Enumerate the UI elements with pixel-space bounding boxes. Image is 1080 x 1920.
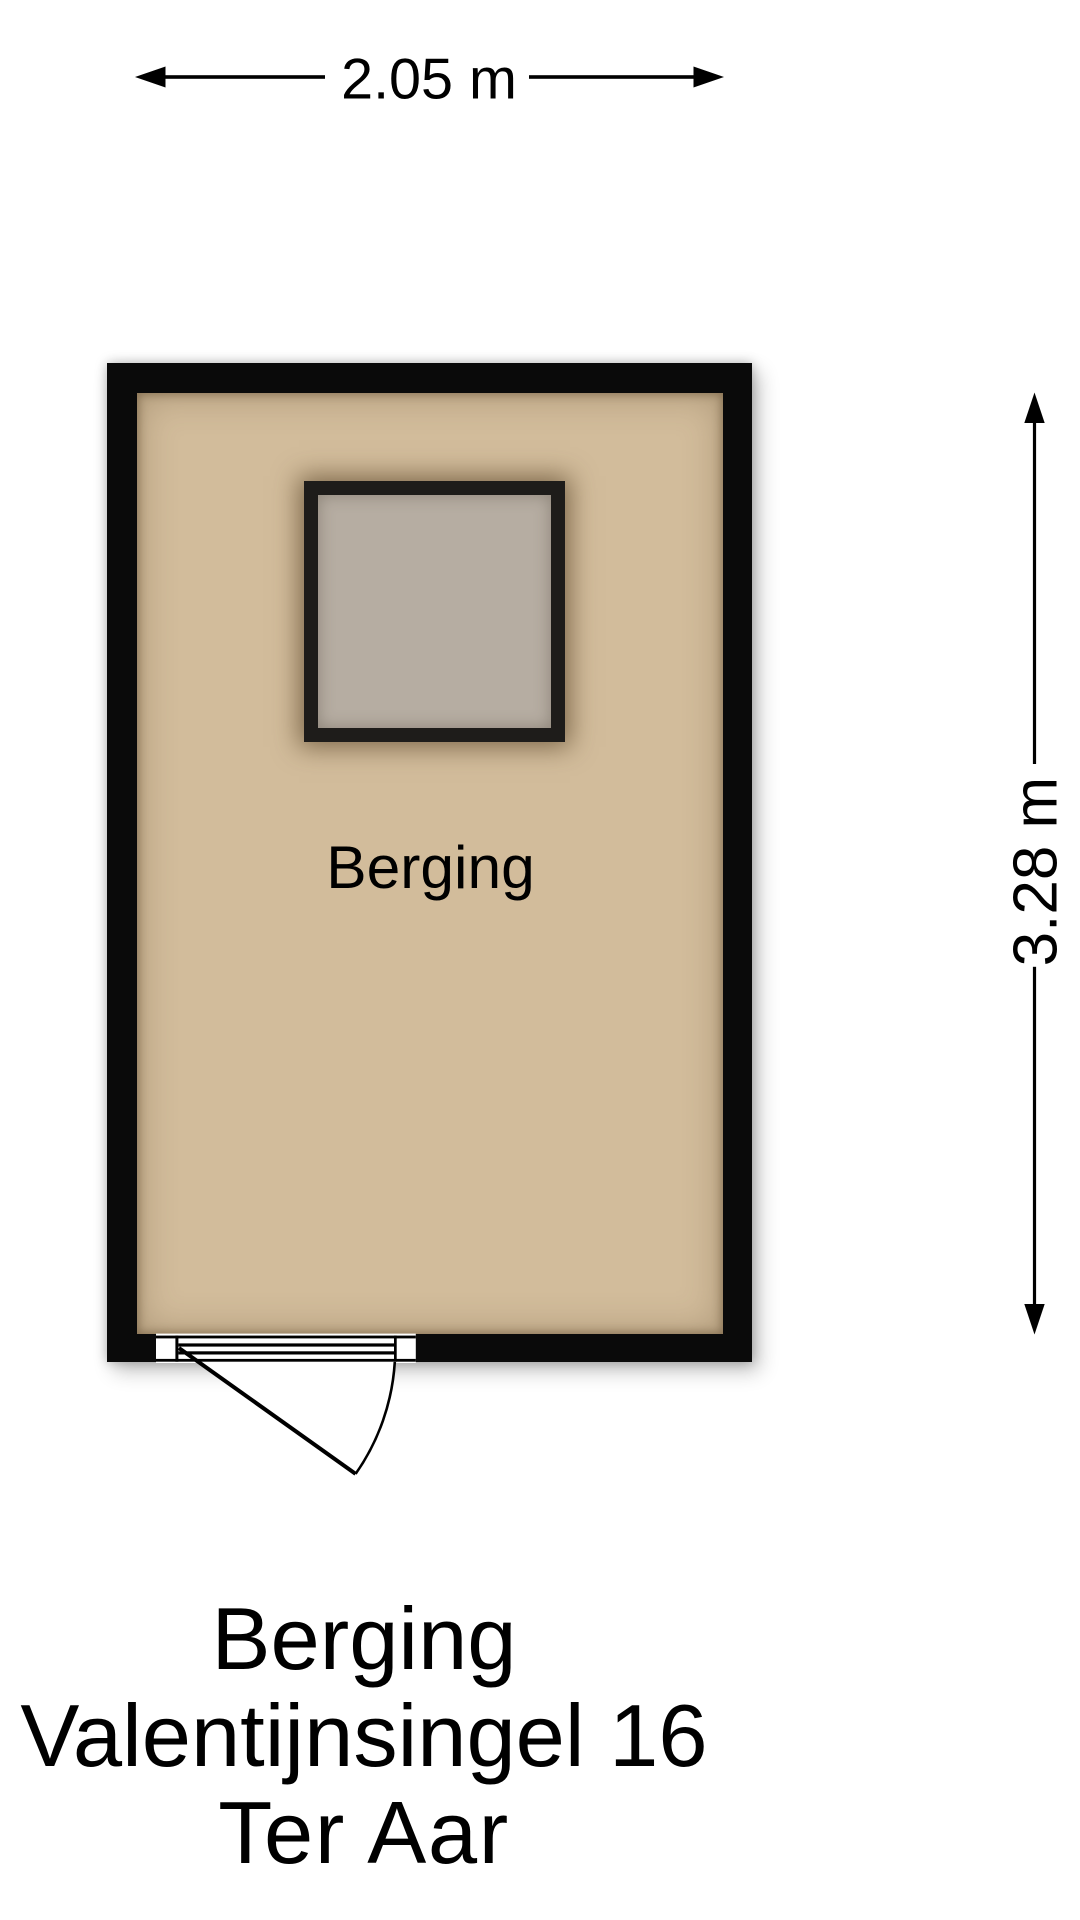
svg-text:2.05 m: 2.05 m bbox=[341, 47, 517, 111]
svg-text:3.28 m: 3.28 m bbox=[1002, 777, 1071, 967]
